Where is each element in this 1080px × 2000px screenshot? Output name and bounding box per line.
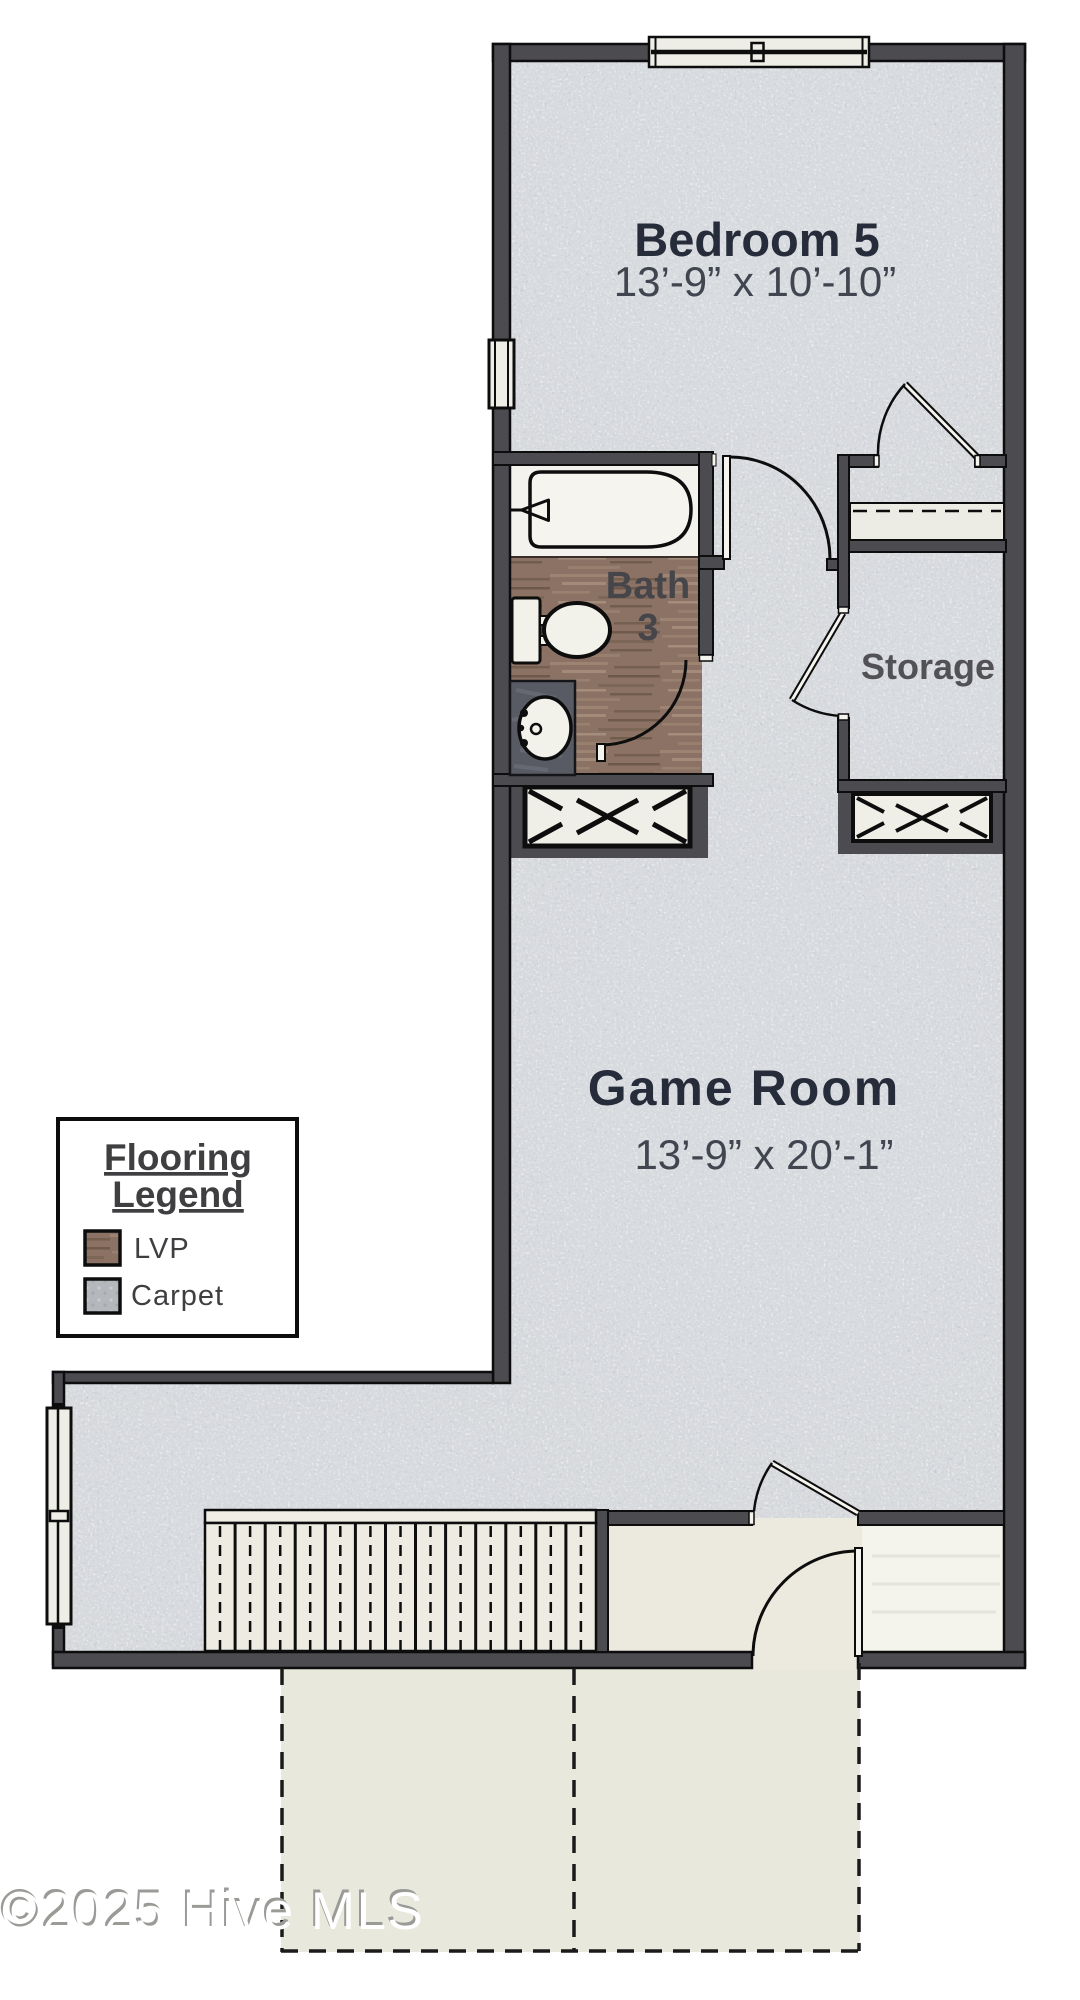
svg-text:Legend: Legend: [112, 1174, 244, 1215]
svg-text:Flooring: Flooring: [104, 1137, 252, 1178]
svg-text:LVP: LVP: [134, 1233, 190, 1265]
svg-text:Storage: Storage: [861, 646, 995, 687]
svg-text:©2025 Hive MLS: ©2025 Hive MLS: [2, 1882, 424, 1941]
svg-text:Game Room: Game Room: [588, 1060, 901, 1116]
svg-text:Carpet: Carpet: [131, 1280, 224, 1312]
svg-text:Bath: Bath: [606, 565, 690, 607]
svg-text:13’-9” x 10’-10”: 13’-9” x 10’-10”: [614, 258, 896, 305]
svg-text:13’-9” x 20’-1”: 13’-9” x 20’-1”: [634, 1131, 893, 1178]
svg-text:3: 3: [637, 607, 658, 649]
